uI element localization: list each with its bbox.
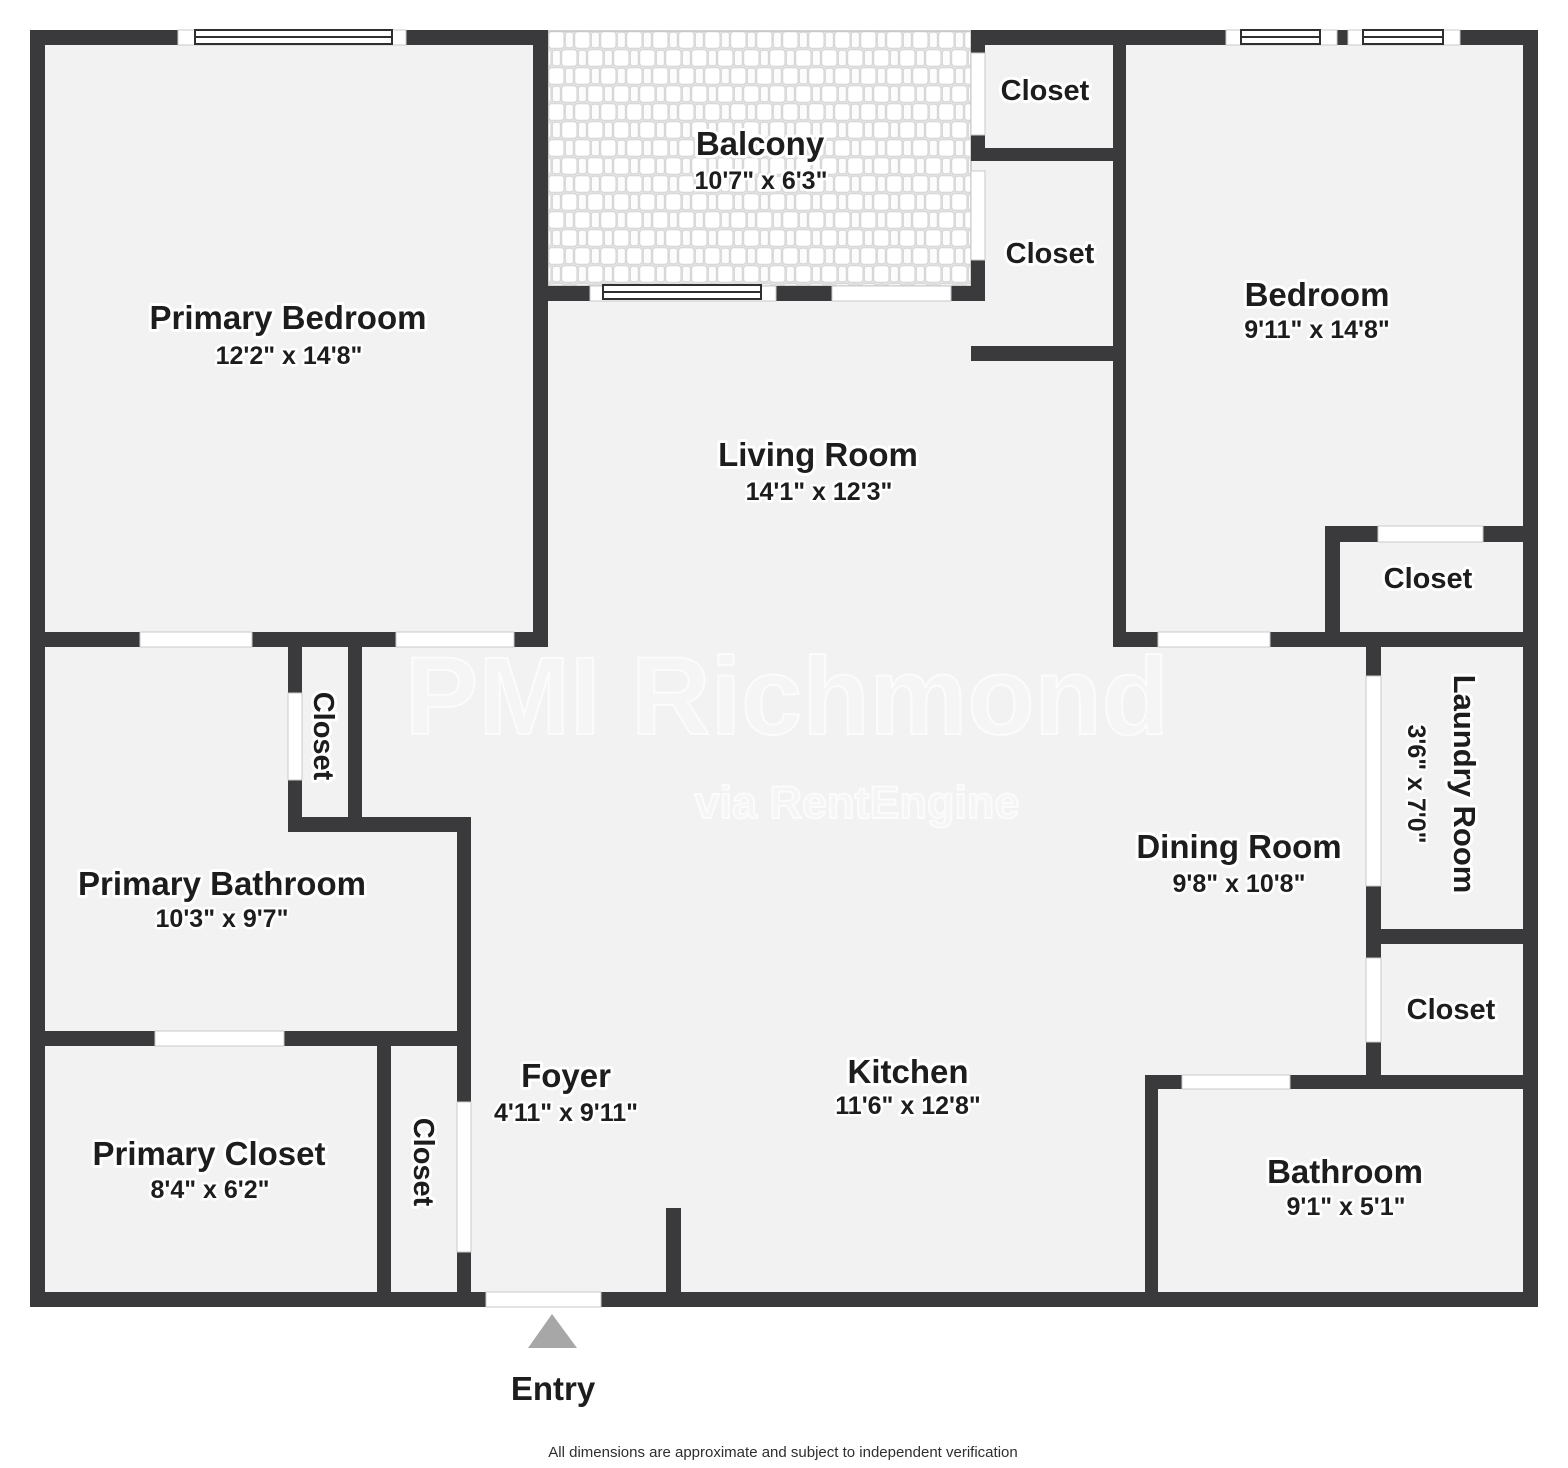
- svg-text:Living Room: Living Room: [718, 436, 918, 473]
- svg-text:11'6" x 12'8": 11'6" x 12'8": [835, 1092, 980, 1120]
- svg-text:3'6" x 7'0": 3'6" x 7'0": [1402, 724, 1430, 843]
- svg-text:8'4" x 6'2": 8'4" x 6'2": [150, 1176, 269, 1204]
- svg-text:Bedroom: Bedroom: [1245, 276, 1390, 313]
- svg-text:12'2" x 14'8": 12'2" x 14'8": [216, 342, 363, 370]
- svg-text:4'11" x 9'11": 4'11" x 9'11": [494, 1099, 638, 1127]
- svg-text:9'8" x 10'8": 9'8" x 10'8": [1173, 870, 1306, 898]
- svg-text:PMI Richmond: PMI Richmond: [405, 635, 1169, 758]
- svg-text:10'3" x 9'7": 10'3" x 9'7": [156, 905, 289, 933]
- svg-text:Entry: Entry: [511, 1370, 596, 1407]
- svg-text:Bathroom: Bathroom: [1267, 1153, 1423, 1190]
- svg-text:Closet: Closet: [1384, 563, 1473, 595]
- svg-text:Laundry Room: Laundry Room: [1447, 675, 1482, 894]
- svg-text:9'11" x 14'8": 9'11" x 14'8": [1244, 316, 1389, 344]
- svg-text:All dimensions are approximate: All dimensions are approximate and subje…: [548, 1444, 1017, 1461]
- svg-text:14'1" x 12'3": 14'1" x 12'3": [746, 478, 893, 506]
- svg-text:Primary Bedroom: Primary Bedroom: [150, 299, 427, 336]
- svg-text:Closet: Closet: [1006, 238, 1095, 270]
- svg-text:Foyer: Foyer: [521, 1057, 611, 1094]
- svg-text:10'7" x 6'3": 10'7" x 6'3": [695, 167, 828, 195]
- svg-text:Closet: Closet: [1407, 994, 1496, 1026]
- svg-text:Closet: Closet: [1001, 75, 1090, 107]
- svg-text:9'1" x 5'1": 9'1" x 5'1": [1286, 1193, 1405, 1221]
- svg-text:Primary Bathroom: Primary Bathroom: [78, 865, 366, 902]
- svg-text:Closet: Closet: [307, 692, 339, 781]
- svg-text:Kitchen: Kitchen: [847, 1053, 968, 1090]
- svg-text:Closet: Closet: [407, 1118, 439, 1207]
- svg-text:Dining Room: Dining Room: [1136, 828, 1341, 865]
- svg-text:Balcony: Balcony: [696, 125, 825, 162]
- svg-text:via RentEngine: via RentEngine: [694, 777, 1019, 828]
- svg-text:Primary Closet: Primary Closet: [93, 1135, 326, 1172]
